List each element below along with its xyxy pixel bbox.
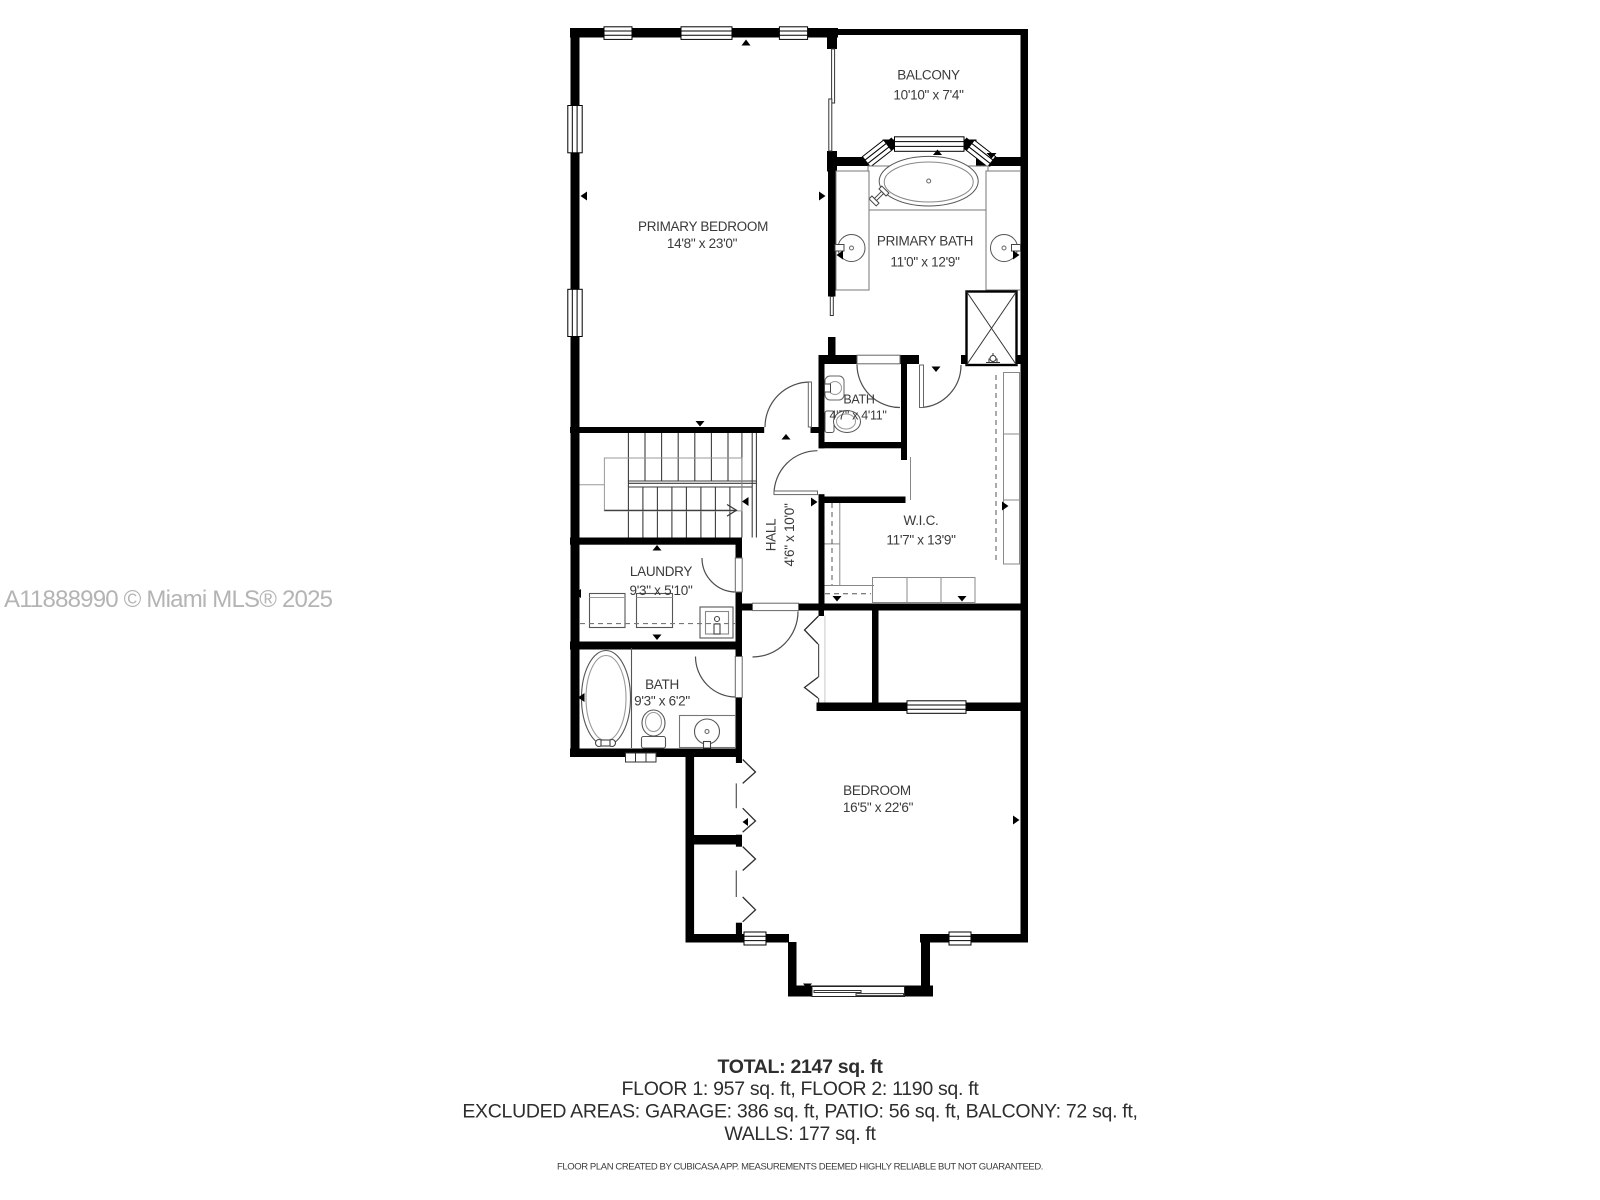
svg-text:LAUNDRY: LAUNDRY <box>630 564 692 579</box>
svg-text:9'3" x 6'2": 9'3" x 6'2" <box>634 694 690 709</box>
svg-text:FLOOR 1: 957 sq. ft, FLOOR 2:: FLOOR 1: 957 sq. ft, FLOOR 2: 1190 sq. f… <box>622 1078 980 1100</box>
svg-text:W.I.C.: W.I.C. <box>904 513 939 528</box>
svg-text:A11888990 © Miami MLS® 2025: A11888990 © Miami MLS® 2025 <box>4 586 333 613</box>
svg-text:9'3" x 5'10": 9'3" x 5'10" <box>630 583 693 598</box>
svg-text:PRIMARY BEDROOM: PRIMARY BEDROOM <box>638 219 768 234</box>
svg-text:HALL: HALL <box>764 518 779 551</box>
svg-text:BATH: BATH <box>645 677 679 692</box>
svg-text:PRIMARY BATH: PRIMARY BATH <box>877 234 973 249</box>
svg-text:10'10" x 7'4": 10'10" x 7'4" <box>893 88 964 103</box>
svg-text:14'8" x 23'0": 14'8" x 23'0" <box>667 236 738 251</box>
svg-text:WALLS: 177 sq. ft: WALLS: 177 sq. ft <box>724 1123 876 1145</box>
svg-text:TOTAL: 2147 sq. ft: TOTAL: 2147 sq. ft <box>717 1056 883 1078</box>
svg-text:BEDROOM: BEDROOM <box>843 783 911 798</box>
svg-text:BATH: BATH <box>843 393 874 407</box>
svg-text:BALCONY: BALCONY <box>897 68 960 83</box>
svg-text:FLOOR PLAN CREATED BY CUBICASA: FLOOR PLAN CREATED BY CUBICASA APP. MEAS… <box>557 1162 1043 1173</box>
svg-text:4'6" x 10'0": 4'6" x 10'0" <box>782 503 797 566</box>
svg-text:4'7" x 4'11": 4'7" x 4'11" <box>829 409 886 423</box>
svg-text:EXCLUDED AREAS: GARAGE: 386 sq: EXCLUDED AREAS: GARAGE: 386 sq. ft, PATI… <box>462 1101 1137 1123</box>
svg-text:11'0" x 12'9": 11'0" x 12'9" <box>890 255 960 270</box>
svg-text:16'5" x 22'6": 16'5" x 22'6" <box>843 800 914 815</box>
svg-text:11'7" x 13'9": 11'7" x 13'9" <box>886 533 956 548</box>
